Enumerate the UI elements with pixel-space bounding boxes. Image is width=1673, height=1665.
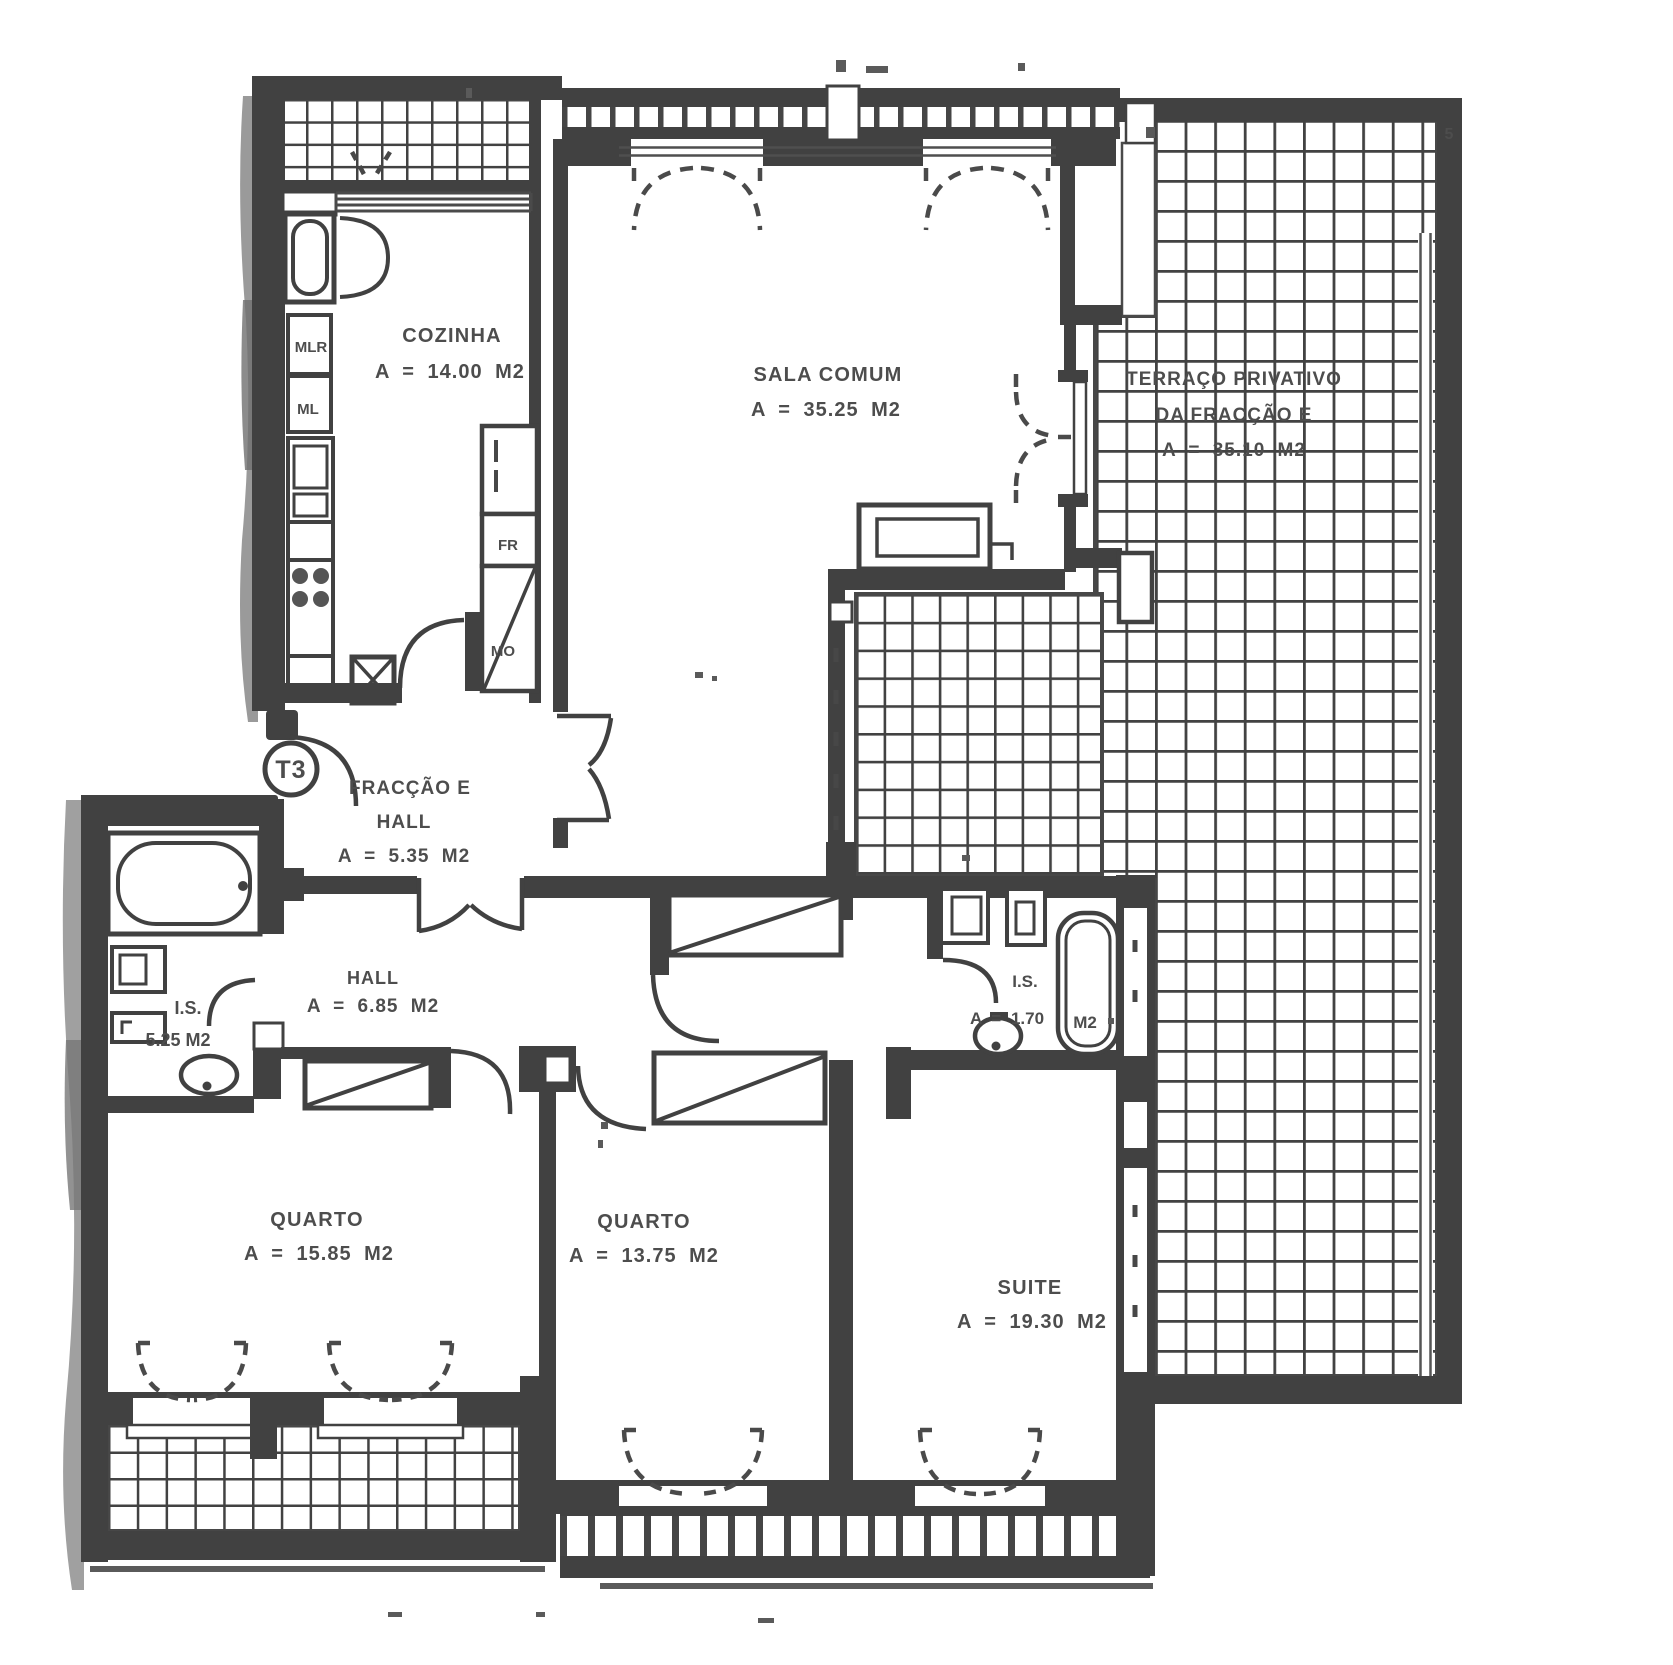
- svg-text:HALL: HALL: [347, 968, 399, 988]
- svg-text:T3: T3: [275, 756, 306, 784]
- svg-text:FR: FR: [498, 537, 518, 554]
- svg-text:HALL: HALL: [377, 812, 432, 833]
- svg-text:FRACÇÃO E: FRACÇÃO E: [349, 777, 471, 799]
- svg-text:QUARTO: QUARTO: [597, 1211, 691, 1233]
- svg-text:MO: MO: [491, 643, 515, 660]
- svg-text:COZINHA: COZINHA: [402, 325, 502, 347]
- svg-text:SUITE: SUITE: [998, 1277, 1063, 1299]
- svg-text:A = 5.35 M2: A = 5.35 M2: [338, 846, 470, 867]
- svg-text:5.25 M2: 5.25 M2: [145, 1030, 210, 1050]
- svg-text:QUARTO: QUARTO: [270, 1209, 364, 1231]
- svg-text:MLR: MLR: [295, 339, 328, 356]
- svg-text:SALA COMUM: SALA COMUM: [753, 364, 902, 386]
- svg-text:A = 6.85 M2: A = 6.85 M2: [307, 996, 439, 1017]
- svg-text:I.S.: I.S.: [174, 998, 201, 1018]
- svg-text:A = 15.85 M2: A = 15.85 M2: [244, 1243, 394, 1265]
- svg-text:A = 14.00 M2: A = 14.00 M2: [375, 361, 525, 383]
- svg-text:DA FRACÇÃO E: DA FRACÇÃO E: [1156, 404, 1313, 426]
- svg-text:A = 1.70: A = 1.70: [970, 1009, 1044, 1028]
- svg-text:A = 35.25 M2: A = 35.25 M2: [751, 399, 901, 421]
- svg-text:A = 35.10 M2: A = 35.10 M2: [1162, 440, 1306, 461]
- svg-text:TERRAÇO PRIVATIVO: TERRAÇO PRIVATIVO: [1126, 369, 1342, 390]
- svg-text:I.S.: I.S.: [1012, 972, 1038, 991]
- svg-text:5: 5: [1445, 126, 1454, 143]
- svg-text:A = 19.30 M2: A = 19.30 M2: [957, 1311, 1107, 1333]
- svg-text:M2: M2: [1073, 1013, 1097, 1032]
- svg-text:ML: ML: [297, 401, 319, 418]
- svg-text:A = 13.75 M2: A = 13.75 M2: [569, 1245, 719, 1267]
